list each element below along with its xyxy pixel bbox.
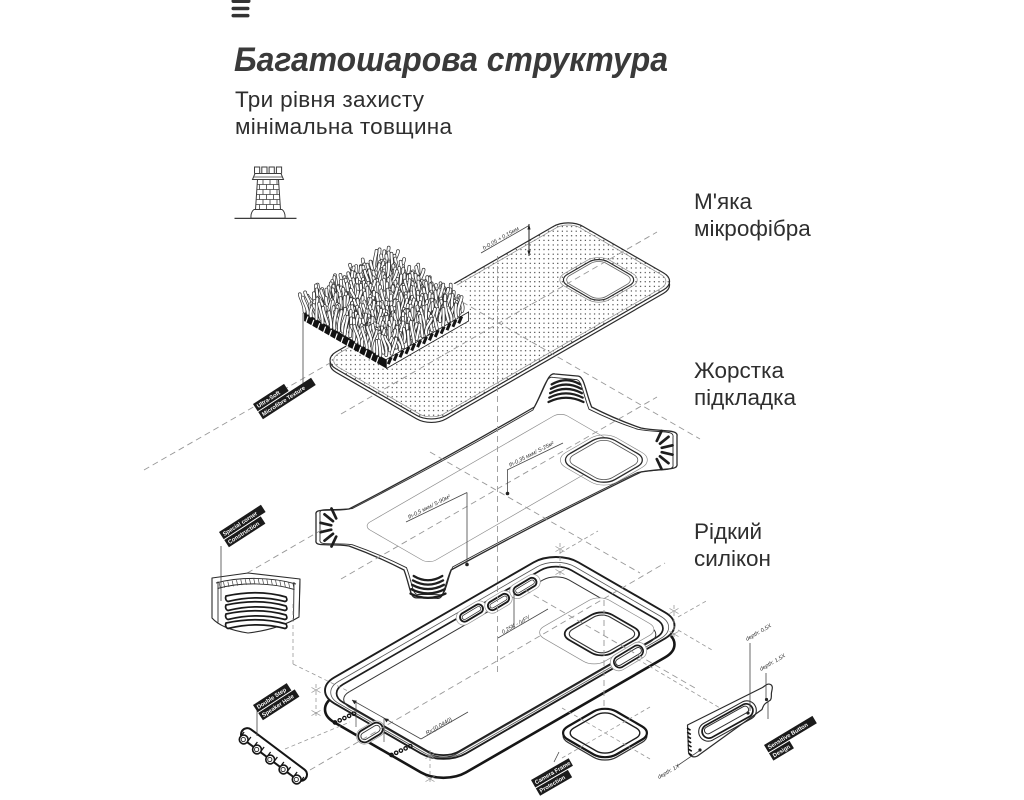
svg-text:Три рівня захисту: Три рівня захисту (235, 87, 425, 112)
svg-text:Жорстка: Жорстка (694, 358, 784, 383)
svg-text:мікрофібра: мікрофібра (694, 216, 811, 241)
svg-text:мінімальна товщина: мінімальна товщина (235, 114, 452, 139)
svg-text:силікон: силікон (694, 546, 771, 571)
svg-text:Рідкий: Рідкий (694, 519, 762, 544)
svg-text:М'яка: М'яка (694, 189, 753, 214)
svg-text:Багатошарова структура: Багатошарова структура (234, 41, 668, 79)
svg-text:підкладка: підкладка (694, 385, 797, 410)
